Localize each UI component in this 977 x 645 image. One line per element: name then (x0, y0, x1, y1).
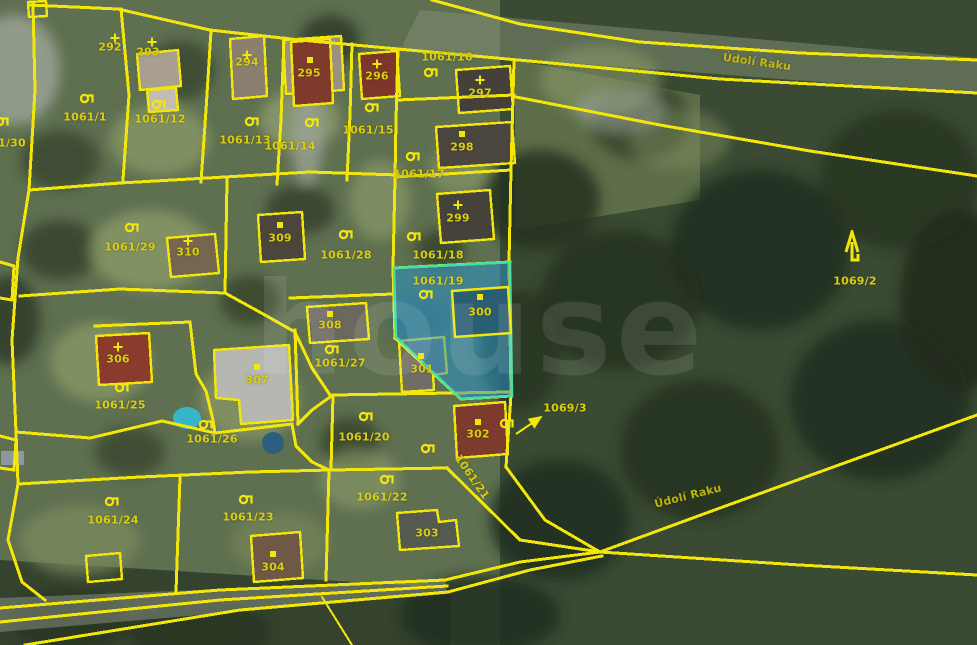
cadastral-map-viewport[interactable]: house 2922932942952962972982993003013023… (0, 0, 977, 645)
trampoline (262, 432, 284, 454)
building-293-annex (147, 88, 178, 112)
building-300-highlight-outline (452, 287, 511, 337)
building-296 (359, 51, 400, 99)
parked-car (1, 451, 24, 465)
building-297 (456, 66, 513, 113)
building-310 (167, 234, 219, 277)
building-304 (251, 532, 303, 582)
building-295 (291, 39, 333, 106)
building-306 (96, 333, 152, 385)
building-293 (137, 50, 181, 90)
building-308 (307, 303, 369, 343)
building-294 (230, 36, 267, 99)
building-309 (258, 212, 305, 262)
building-302 (454, 402, 508, 458)
cadastral-map-canvas[interactable] (0, 0, 977, 645)
building-299 (437, 190, 494, 243)
building-298 (436, 122, 515, 168)
